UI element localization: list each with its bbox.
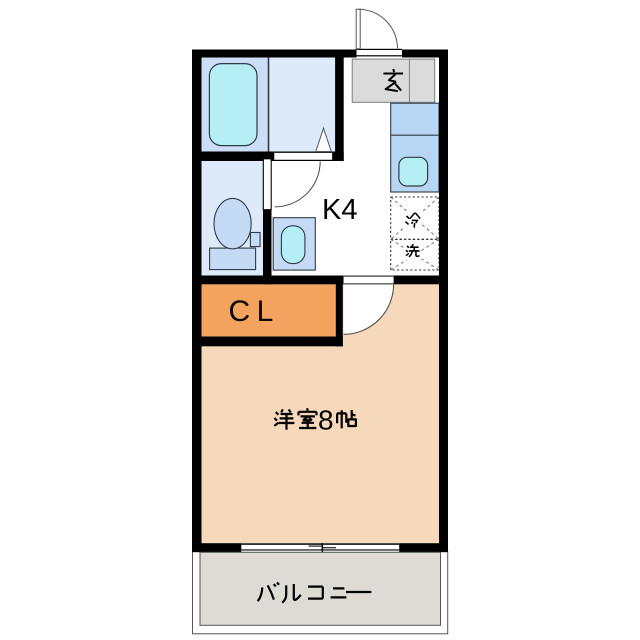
- svg-text:8: 8: [318, 405, 334, 436]
- svg-text:K4: K4: [322, 194, 357, 226]
- svg-text:CL: CL: [229, 295, 280, 328]
